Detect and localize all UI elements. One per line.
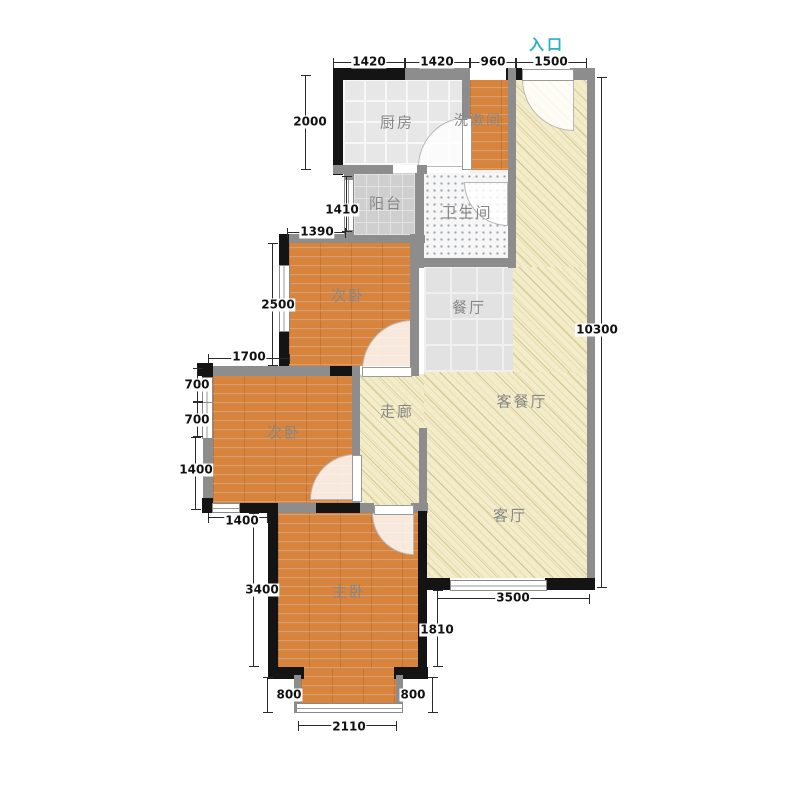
- wall: [545, 578, 595, 590]
- wall: [405, 68, 470, 80]
- dim-label: 1410: [324, 204, 359, 217]
- dim-line: [432, 677, 433, 713]
- dim-label: 2000: [292, 116, 327, 129]
- dim-label: 800: [275, 689, 302, 702]
- living-dining-label: 客餐厅: [496, 391, 547, 412]
- dim-label: 1810: [419, 624, 454, 637]
- wall: [508, 68, 516, 268]
- wall: [418, 511, 427, 678]
- bedroom-upper-label: 次卧: [331, 285, 365, 306]
- master-bedroom-label: 主卧: [332, 581, 366, 602]
- washroom-label: 洗漱间: [454, 110, 502, 130]
- balcony-label: 阳台: [369, 193, 403, 214]
- dim-label: 2500: [260, 299, 295, 312]
- floor-plan: 厨房 洗漱间 阳台 卫生间 餐厅 次卧 走廊 客餐厅 次卧 客厅 主卧 入口 1…: [0, 0, 800, 800]
- wall: [419, 578, 450, 590]
- dim-label: 800: [399, 689, 426, 702]
- dim-label: 10300: [575, 324, 619, 337]
- entrance-label: 入口: [529, 34, 565, 55]
- wall: [279, 234, 289, 265]
- dim-label: 1500: [533, 56, 568, 69]
- dim-label: 1700: [231, 351, 266, 364]
- wall: [333, 68, 343, 175]
- dim-label: 2110: [331, 721, 366, 734]
- wall: [316, 503, 360, 513]
- wall: [419, 428, 427, 505]
- dim-line: [267, 677, 268, 713]
- entrance-door-leaf: [522, 69, 574, 81]
- dim-label: 3400: [244, 584, 279, 597]
- wall: [360, 503, 374, 513]
- dim-label: 1400: [224, 515, 259, 528]
- living-room-window: [450, 580, 547, 591]
- master-door-leaf: [374, 505, 414, 515]
- living-dining-floor-upper: [513, 267, 587, 372]
- bedroom-lower-bottom-window: [212, 503, 240, 513]
- dining-label: 餐厅: [452, 297, 486, 318]
- living-label: 客厅: [493, 505, 527, 526]
- bathroom-label: 卫生间: [441, 202, 492, 223]
- dim-label: 1420: [351, 56, 386, 69]
- dim-label: 700: [183, 379, 210, 392]
- master-bay-window: [296, 703, 403, 713]
- dim-label: 700: [183, 414, 210, 427]
- wall: [202, 363, 213, 378]
- wall: [333, 68, 405, 80]
- bedroom-upper-door-leaf: [362, 367, 412, 377]
- dim-label: 1420: [419, 56, 454, 69]
- wall: [415, 258, 516, 267]
- kitchen-label: 厨房: [380, 112, 414, 133]
- dim-label: 960: [479, 56, 506, 69]
- bedroom-lower-label: 次卧: [267, 422, 301, 443]
- wall: [213, 366, 330, 376]
- dim-label: 1390: [299, 226, 334, 239]
- master-bay-floor: [301, 669, 396, 705]
- dim-label: 3500: [495, 592, 530, 605]
- wall: [410, 234, 419, 375]
- corridor-floor: [360, 374, 424, 505]
- bedroom-lower-door-leaf: [352, 455, 362, 502]
- dim-label: 1400: [178, 464, 213, 477]
- dining-floor: [424, 267, 513, 372]
- wall: [352, 366, 360, 455]
- corridor-label: 走廊: [380, 401, 414, 422]
- wall: [333, 165, 393, 174]
- wall: [278, 503, 316, 513]
